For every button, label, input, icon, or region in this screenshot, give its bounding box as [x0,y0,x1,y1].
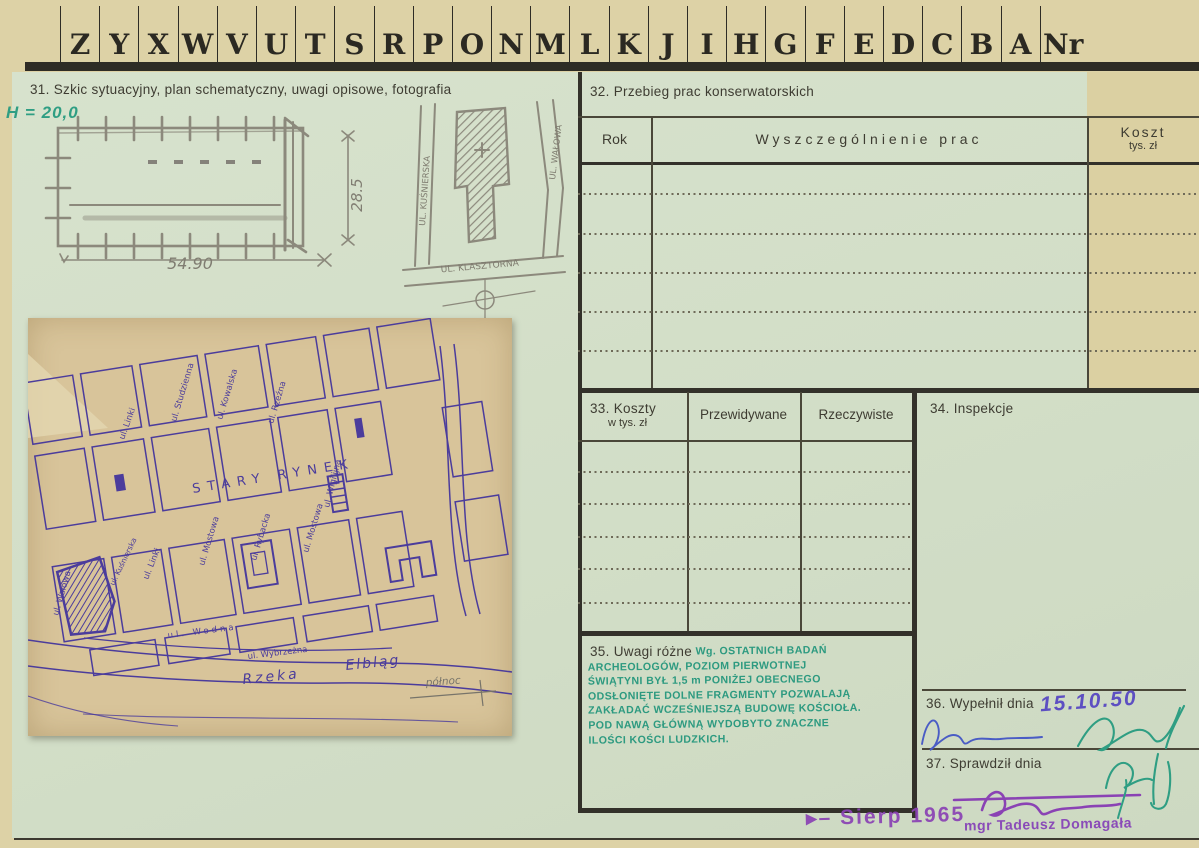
river-label-elblag: Elbląg [345,652,401,674]
top-rule [25,62,1199,71]
street-label-mostowa2: ul. Mostowa [301,502,325,554]
table32-row-rule [578,311,1199,313]
tab-b: B [961,6,1000,62]
tab-row: ZYXWVUTSRPONMLKJIHGFEDCBANr [60,6,1086,62]
col-header-koszt-sub: tys. zł [1087,140,1199,152]
tab-r: R [374,6,413,62]
tab-z: Z [60,6,99,62]
tab-j: J [648,6,687,62]
tab-nr: Nr [1040,6,1086,62]
uwagi-lines: Wg. OSTATNICH BADAŃARCHEOLOGÓW, POZIOM P… [587,642,910,748]
tab-y: Y [99,6,138,62]
col-header-rok: Rok [578,131,651,147]
street-label-linki: ul. Linki [117,407,138,441]
tab-n: N [491,6,530,62]
north-note: północ [424,675,461,689]
tab-p: P [413,6,452,62]
tab-l: L [569,6,608,62]
tab-h: H [726,6,765,62]
height-note: H = 20,0 [6,103,79,123]
col-header-rzeczywiste: Rzeczywiste [800,407,912,422]
street-label-rybacka: ul. Rybacka [249,512,273,562]
photo-corner-fold [28,354,108,438]
river-label-rzeka: Rzeka [242,666,301,688]
section33-title: 33. Koszty [590,401,656,416]
section32-title: 32. Przebieg prac konserwatorskich [590,84,814,99]
table33-row-rule [578,536,912,538]
table32-row-rule [578,350,1199,352]
table32-row-rule [578,193,1199,195]
under-card-edge [1087,72,1199,390]
table33-row-rule [578,568,912,570]
tab-m: M [530,6,569,62]
tab-e: E [844,6,883,62]
col-header-prace: Wyszczególnienie prac [651,131,1087,147]
signature-36-blue [916,706,1048,758]
dim-height-label: 28.5 [348,178,366,211]
table32-row-rule [578,272,1199,274]
section37-title: 37. Sprawdził dnia [926,756,1042,771]
church-plan-sketch: 54.90 28.5 [30,100,375,275]
street-label-rzezna: ul. Rzeźna [266,380,288,425]
tab-t: T [295,6,334,62]
street-label-wodna: ul. Wodna [167,623,237,641]
tab-d: D [883,6,922,62]
scanned-record-card: ZYXWVUTSRPONMLKJIHGFEDCBANr 31. Szkic sy… [0,0,1199,848]
col-header-przewidywane: Przewidywane [687,407,800,422]
tab-s: S [334,6,373,62]
card-bottom-edge [14,838,1199,840]
verifier-name-stamp: mgr Tadeusz Domagała [964,815,1132,834]
site-plan-sketch: UL. KUŚNIERSKA UL. KLASZTORNA UL. WAŁOWA [385,98,580,320]
tab-w: W [178,6,217,62]
street-label-studzienna: ul. Studzienna [169,362,196,423]
tab-v: V [217,6,256,62]
table32-row-rule [578,233,1199,235]
site-street-klasztorna: UL. KLASZTORNA [440,259,520,276]
site-street-walowa: UL. WAŁOWA [548,124,565,180]
dim-width-label: 54.90 [167,254,213,273]
tab-f: F [805,6,844,62]
table33-row-rule [578,503,912,505]
col-header-koszt: Koszt [1087,124,1199,140]
section33-subtitle: w tys. zł [608,417,647,429]
tab-u: U [256,6,295,62]
section31-title: 31. Szkic sytuacyjny, plan schematyczny,… [30,82,452,97]
tab-g: G [765,6,804,62]
section34-title: 34. Inspekcje [930,401,1013,416]
tab-c: C [922,6,961,62]
tab-k: K [609,6,648,62]
street-map-drawing: ul. Wałowa ul. Kuśnierska ul. Linki ul. … [28,318,512,736]
table33-row-rule [578,471,912,473]
tab-i: I [687,6,726,62]
stamp-arrow-mark: ▸– [806,806,841,830]
tab-x: X [138,6,177,62]
date-stamp: ▸– Sierp 1965 [806,802,966,831]
map-photo: ul. Wałowa ul. Kuśnierska ul. Linki ul. … [28,318,512,736]
tab-o: O [452,6,491,62]
table33-row-rule [578,602,912,604]
street-label-wybrzezna: ul. Wybrzeżna [247,645,308,662]
stamp-text: Sierp 1965 [840,803,966,829]
tab-a: A [1001,6,1040,62]
